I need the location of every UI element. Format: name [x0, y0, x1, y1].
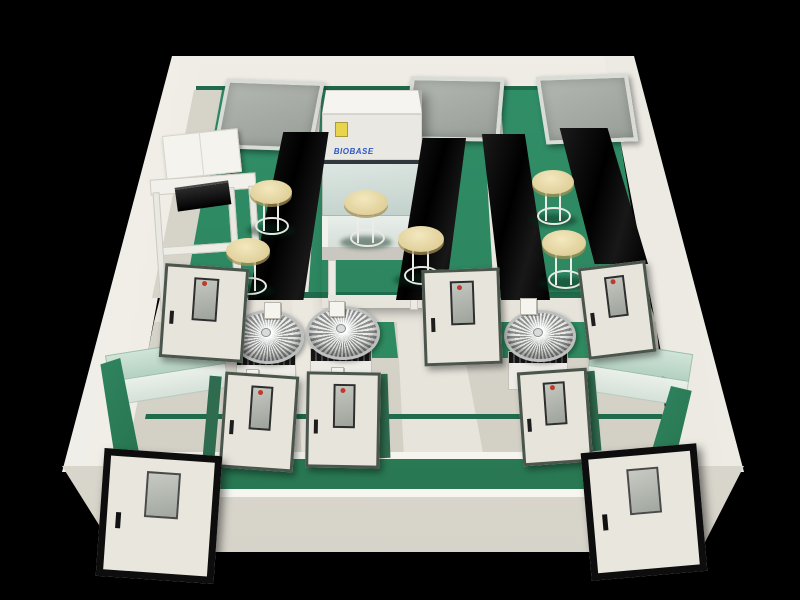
biohazard-dot-icon — [340, 388, 345, 393]
door-handle — [314, 419, 318, 433]
interior-door-5 — [305, 371, 381, 468]
stool-seat — [226, 238, 270, 263]
stool-seat — [542, 230, 586, 256]
scene-items: BIOBASE — [0, 0, 800, 600]
cabinet-brand-label: BIOBASE — [334, 148, 374, 156]
interior-door-6 — [517, 368, 593, 467]
cabinet-head-panel: BIOBASE — [322, 114, 422, 160]
stool-seat — [398, 226, 444, 252]
door-vision-panel — [626, 466, 662, 515]
door-vision-panel — [450, 281, 475, 325]
entry-door-left — [96, 448, 223, 584]
lab-stool-1 — [250, 180, 292, 238]
stool-footring — [537, 207, 570, 225]
door-handle — [602, 514, 608, 530]
cabinet-top-cap — [322, 90, 422, 114]
stool-seat — [532, 170, 574, 194]
wall-switch-3 — [520, 298, 537, 315]
wall-switch-1 — [264, 302, 281, 319]
interior-door-4 — [219, 372, 300, 473]
biohazard-dot-icon — [258, 389, 263, 394]
door-vision-panel — [543, 381, 567, 425]
stool-seat — [250, 180, 292, 204]
stool-footring — [255, 217, 288, 235]
fan-hub — [533, 328, 543, 337]
entry-door-right — [581, 443, 708, 581]
lab-3d-render: BIOBASE — [0, 0, 800, 600]
lab-stool-3 — [344, 190, 388, 250]
door-handle — [591, 313, 597, 326]
stool-footring — [350, 229, 385, 247]
wall-cabinet — [162, 128, 242, 180]
interior-door-2 — [421, 268, 502, 367]
cabinet-door-line — [198, 133, 203, 175]
door-handle — [229, 420, 234, 434]
lab-stool-5 — [532, 170, 574, 228]
interior-door-1 — [159, 263, 249, 363]
door-handle — [431, 318, 435, 332]
interior-door-3 — [578, 260, 657, 360]
door-handle — [528, 419, 533, 432]
door-vision-panel — [144, 471, 180, 519]
warning-sticker-icon — [335, 122, 348, 137]
door-handle — [115, 512, 121, 528]
door-vision-panel — [604, 274, 630, 318]
door-handle — [170, 311, 175, 324]
wall-switch-2 — [329, 301, 345, 317]
stool-seat — [344, 190, 388, 215]
